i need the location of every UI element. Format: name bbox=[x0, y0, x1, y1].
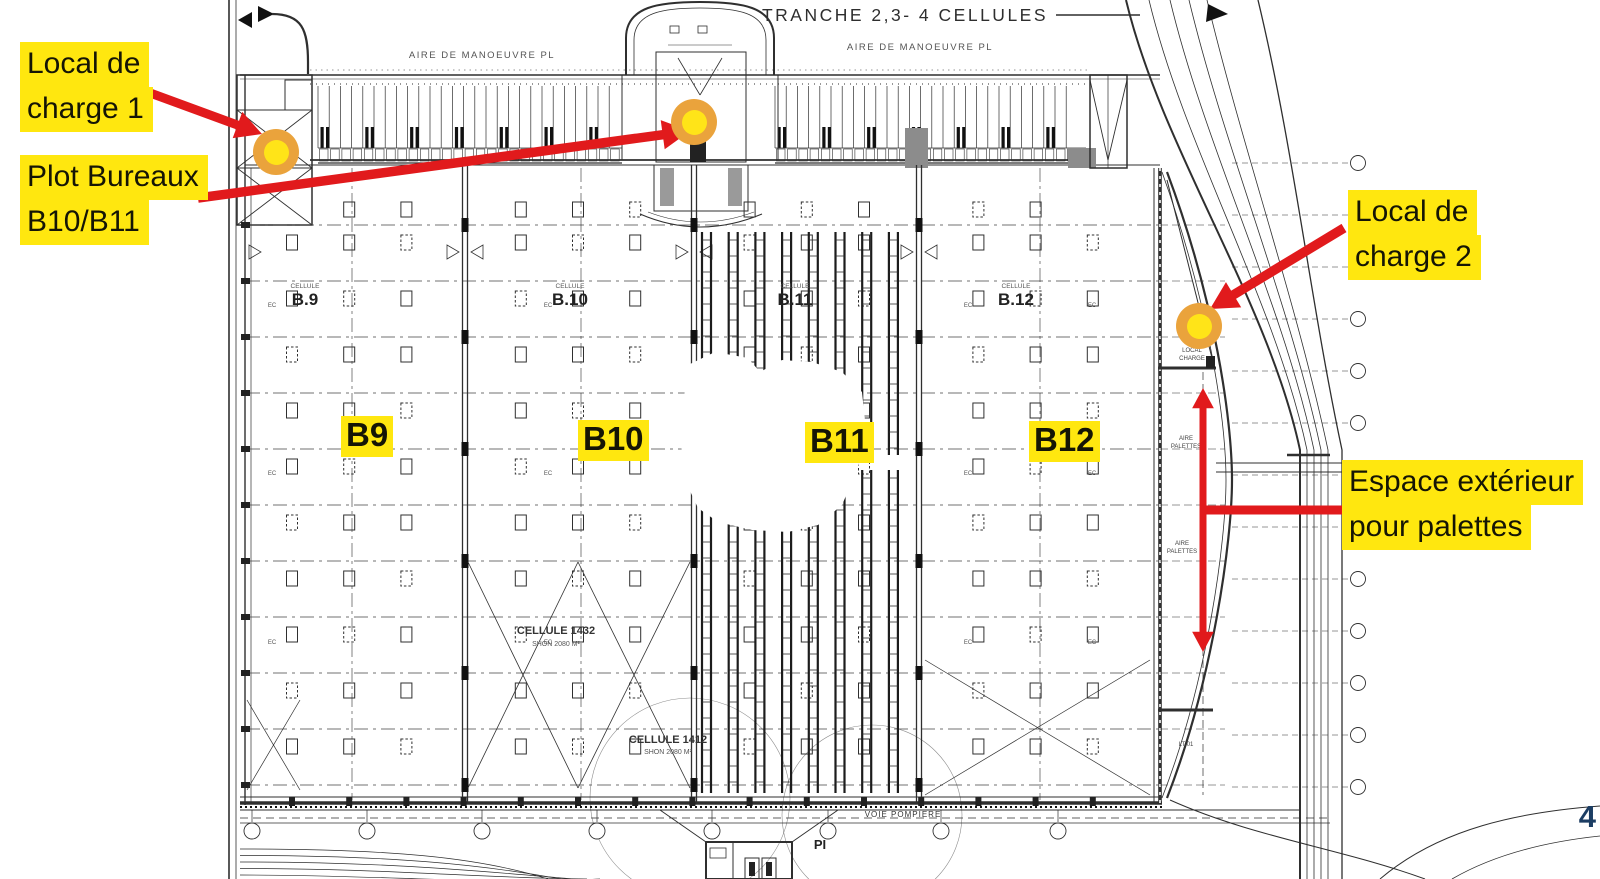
callout-plot-bureaux: Plot Bureaux B10/B11 bbox=[20, 155, 208, 245]
svg-text:EC: EC bbox=[268, 640, 277, 646]
svg-text:EC: EC bbox=[544, 303, 553, 309]
svg-text:CELLULE 1412: CELLULE 1412 bbox=[629, 734, 707, 746]
svg-text:EC: EC bbox=[268, 471, 277, 477]
svg-text:EC: EC bbox=[964, 471, 973, 477]
svg-text:AIRE DE MANOEUVRE PL: AIRE DE MANOEUVRE PL bbox=[409, 50, 555, 61]
svg-text:EC: EC bbox=[268, 303, 277, 309]
marker-core bbox=[682, 110, 707, 135]
svg-text:EC: EC bbox=[1088, 471, 1097, 477]
svg-text:PALETTES: PALETTES bbox=[1171, 444, 1201, 450]
marker-core bbox=[264, 140, 289, 165]
callout-line: charge 2 bbox=[1348, 235, 1481, 280]
callout-espace-exterieur: Espace extérieur pour palettes bbox=[1342, 460, 1583, 550]
svg-text:EC: EC bbox=[964, 303, 973, 309]
marker-local-charge-1 bbox=[253, 129, 299, 175]
svg-text:B.12: B.12 bbox=[998, 290, 1034, 309]
callout-line: charge 1 bbox=[20, 87, 153, 132]
marker-plot-bureaux bbox=[671, 99, 717, 145]
svg-text:AIRE: AIRE bbox=[1175, 541, 1189, 547]
callout-local-de-charge-2: Local de charge 2 bbox=[1348, 190, 1481, 280]
cell-tag-b11: B11 bbox=[805, 422, 874, 463]
svg-text:AIRE: AIRE bbox=[1179, 436, 1193, 442]
svg-text:EC: EC bbox=[544, 640, 553, 646]
cell-tag-b10: B10 bbox=[578, 420, 649, 461]
svg-text:PALETTES: PALETTES bbox=[1167, 549, 1197, 555]
svg-text:CHARGE: CHARGE bbox=[1179, 356, 1205, 362]
svg-text:SHON 2080 M²: SHON 2080 M² bbox=[644, 749, 693, 756]
svg-text:B.11: B.11 bbox=[778, 290, 813, 309]
callout-line: Local de bbox=[1348, 190, 1477, 235]
slide: TRANCHE 2,3- 4 CELLULESAIRE DE MANOEUVRE… bbox=[0, 0, 1600, 879]
svg-text:VOIE POMPIERE: VOIE POMPIERE bbox=[865, 810, 942, 819]
svg-text:LT 01: LT 01 bbox=[1179, 742, 1194, 748]
svg-text:EC: EC bbox=[964, 640, 973, 646]
callout-local-de-charge-1: Local de charge 1 bbox=[20, 42, 153, 132]
cell-tag-b9: B9 bbox=[341, 416, 393, 457]
svg-text:EC: EC bbox=[1088, 640, 1097, 646]
marker-core bbox=[1187, 314, 1212, 339]
page-number: 4 bbox=[1566, 799, 1596, 835]
callout-line: B10/B11 bbox=[20, 200, 149, 245]
annotation-arrows-layer bbox=[0, 0, 1600, 879]
svg-text:CELLULE: CELLULE bbox=[781, 283, 811, 290]
callout-line: Local de bbox=[20, 42, 149, 87]
svg-text:EC: EC bbox=[544, 471, 553, 477]
svg-text:PI: PI bbox=[814, 837, 826, 852]
svg-text:CELLULE 1432: CELLULE 1432 bbox=[517, 625, 595, 637]
svg-text:CELLULE: CELLULE bbox=[1002, 283, 1032, 290]
svg-text:SHON 2080 M²: SHON 2080 M² bbox=[532, 641, 581, 648]
marker-local-charge-2 bbox=[1176, 303, 1222, 349]
svg-text:CELLULE: CELLULE bbox=[556, 283, 586, 290]
callout-line: Plot Bureaux bbox=[20, 155, 208, 200]
svg-text:EC: EC bbox=[1088, 303, 1097, 309]
svg-text:B.9: B.9 bbox=[292, 290, 318, 309]
callout-line: pour palettes bbox=[1342, 505, 1531, 550]
floor-plan-drawing: TRANCHE 2,3- 4 CELLULESAIRE DE MANOEUVRE… bbox=[0, 0, 1600, 879]
svg-text:CELLULE: CELLULE bbox=[291, 283, 321, 290]
callout-line: Espace extérieur bbox=[1342, 460, 1583, 505]
svg-text:AIRE DE MANOEUVRE PL: AIRE DE MANOEUVRE PL bbox=[847, 42, 993, 53]
svg-text:B.10: B.10 bbox=[552, 290, 588, 309]
cell-tag-b12: B12 bbox=[1029, 421, 1100, 462]
svg-text:TRANCHE 2,3- 4 CELLULES: TRANCHE 2,3- 4 CELLULES bbox=[762, 5, 1048, 25]
